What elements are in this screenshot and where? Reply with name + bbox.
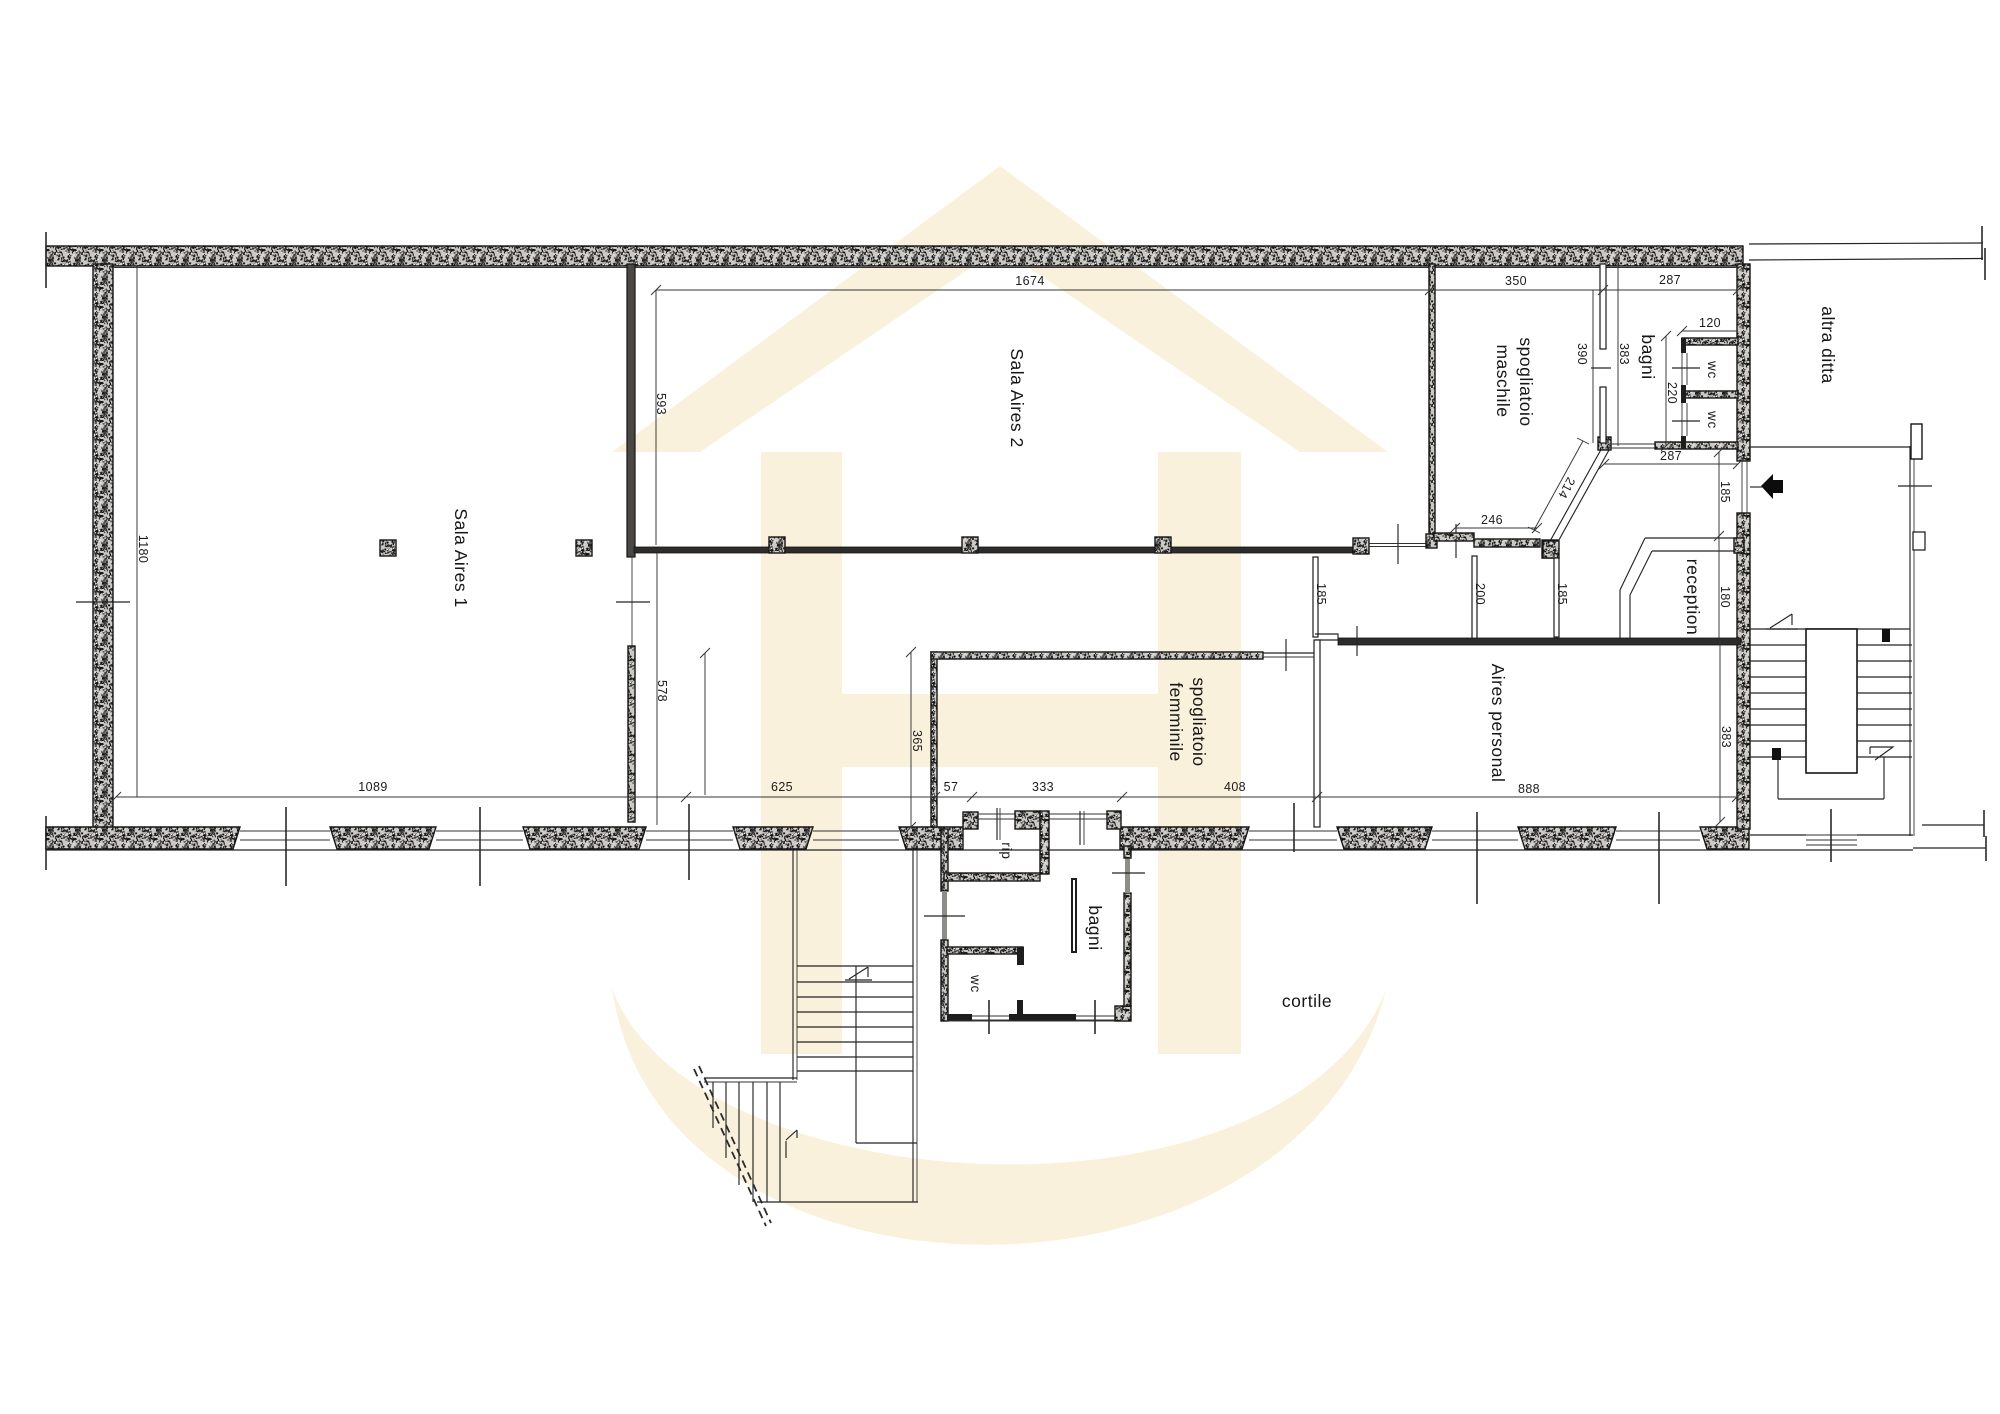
svg-text:383: 383 [1617, 343, 1631, 365]
svg-text:maschile: maschile [1493, 344, 1513, 417]
svg-text:287: 287 [1659, 273, 1681, 287]
svg-text:625: 625 [771, 780, 793, 794]
svg-text:578: 578 [655, 680, 669, 702]
svg-text:200: 200 [1473, 583, 1487, 605]
svg-text:593: 593 [654, 393, 668, 415]
svg-text:220: 220 [1665, 382, 1679, 404]
svg-text:185: 185 [1555, 583, 1569, 605]
svg-text:185: 185 [1718, 481, 1732, 503]
svg-text:333: 333 [1032, 780, 1054, 794]
svg-text:1674: 1674 [1015, 274, 1044, 288]
svg-text:rip: rip [999, 842, 1014, 859]
svg-text:1180: 1180 [136, 535, 150, 563]
svg-text:888: 888 [1518, 782, 1540, 796]
svg-text:246: 246 [1481, 513, 1503, 527]
svg-text:1089: 1089 [358, 780, 387, 794]
svg-text:390: 390 [1575, 343, 1589, 365]
svg-text:Sala Aires 1: Sala Aires 1 [451, 508, 471, 607]
svg-text:287: 287 [1660, 449, 1682, 463]
svg-text:Aires personal: Aires personal [1488, 664, 1508, 783]
svg-text:reception: reception [1683, 559, 1703, 636]
svg-text:wc: wc [968, 974, 983, 993]
svg-text:femminile: femminile [1166, 682, 1186, 761]
svg-text:wc: wc [1705, 360, 1720, 379]
svg-text:350: 350 [1505, 274, 1527, 288]
svg-text:57: 57 [944, 780, 959, 794]
svg-text:365: 365 [910, 730, 924, 752]
svg-text:bagni: bagni [1085, 905, 1105, 950]
svg-text:bagni: bagni [1638, 334, 1658, 379]
svg-text:cortile: cortile [1282, 991, 1332, 1011]
svg-text:408: 408 [1224, 780, 1246, 794]
svg-text:Sala Aires 2: Sala Aires 2 [1007, 348, 1027, 447]
svg-text:185: 185 [1314, 583, 1328, 605]
svg-text:spogliatoio: spogliatoio [1516, 337, 1536, 426]
svg-text:383: 383 [1719, 726, 1733, 748]
svg-text:120: 120 [1699, 316, 1721, 330]
svg-text:wc: wc [1705, 410, 1720, 429]
svg-text:altra ditta: altra ditta [1818, 306, 1838, 383]
svg-text:spogliatoio: spogliatoio [1189, 677, 1209, 766]
svg-text:180: 180 [1718, 586, 1732, 608]
